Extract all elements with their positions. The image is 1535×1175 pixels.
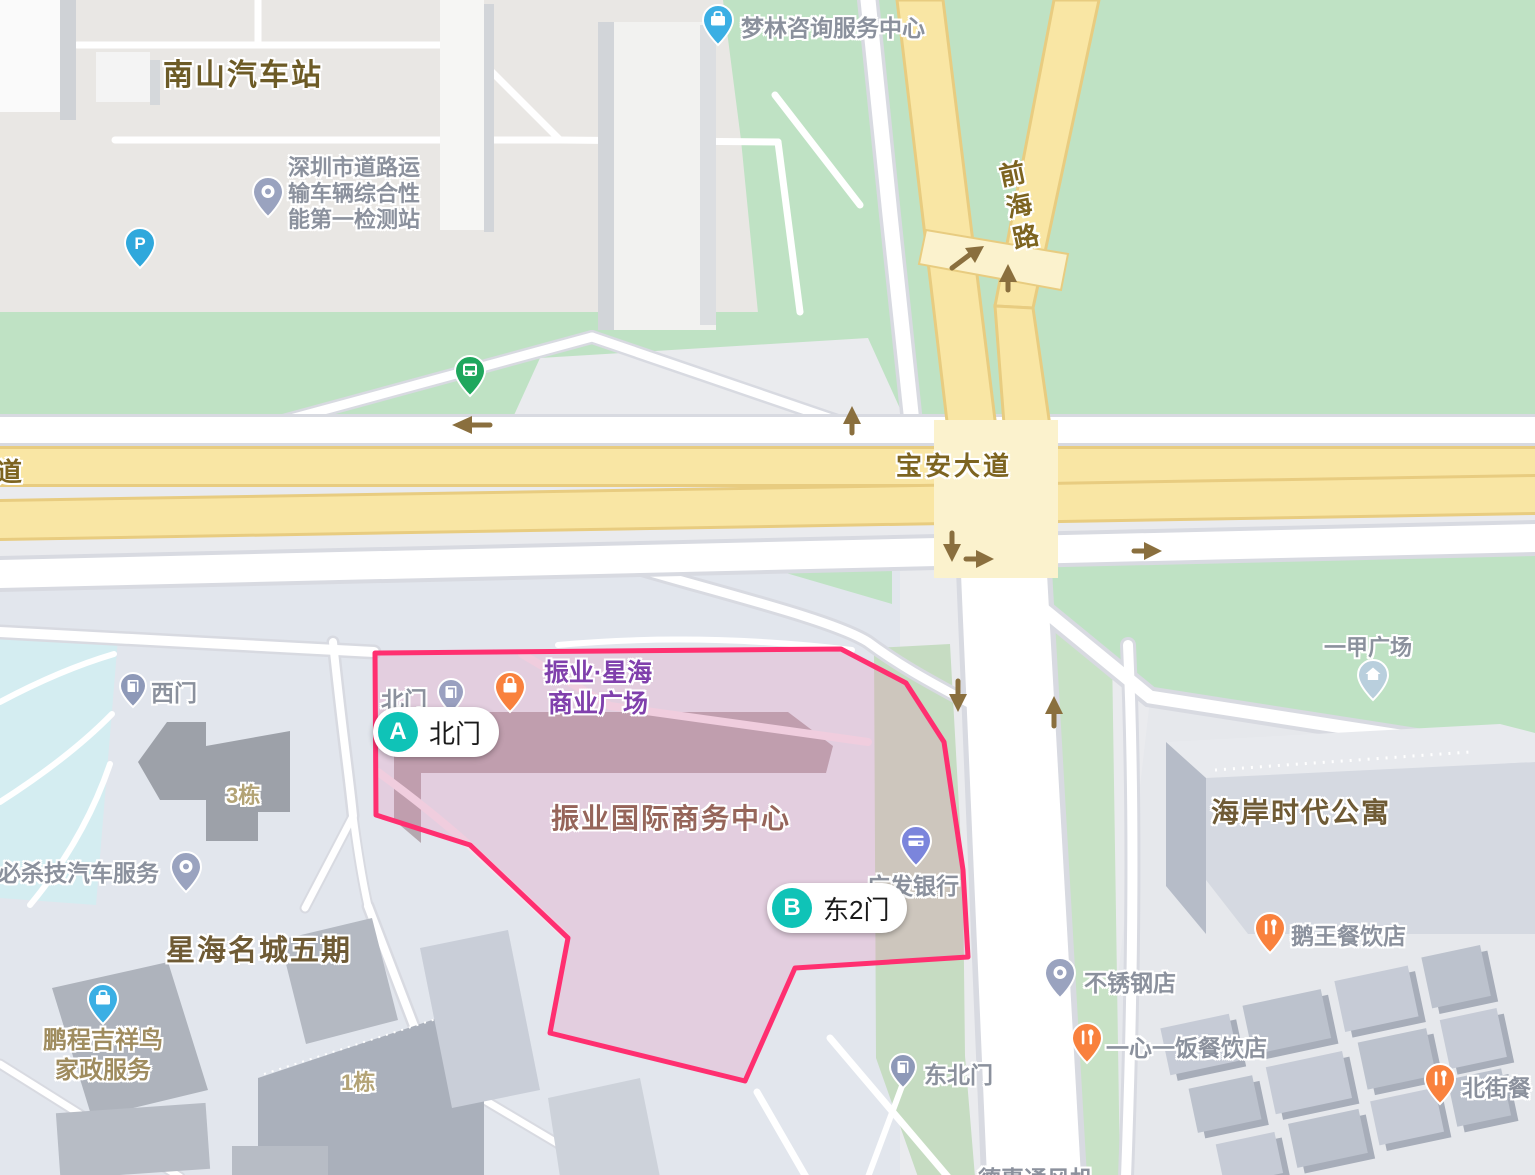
- door-pin-icon: [118, 671, 148, 709]
- gate-marker-a-label: 北门: [429, 714, 481, 751]
- dot-pin-icon: [251, 175, 285, 219]
- beijie-restaurant-pin[interactable]: [1423, 1062, 1457, 1111]
- district-label-haian: 海岸时代公寓: [1211, 791, 1391, 831]
- gate-marker-a-badge: A: [378, 712, 418, 752]
- zhenye-plaza-pin[interactable]: [493, 670, 527, 719]
- poi-label-west-gate: 西门: [151, 674, 197, 708]
- gate-marker-b-label: 东2门: [823, 890, 889, 927]
- yixin-restaurant-pin[interactable]: [1070, 1021, 1104, 1070]
- poi-label-zhenye-plaza: 振业·星海 商业广场: [517, 658, 679, 720]
- house-pin-icon: [1356, 658, 1390, 702]
- pengcheng-pin[interactable]: [86, 982, 120, 1031]
- map-canvas[interactable]: [0, 0, 1535, 1175]
- poi-label-dehui: 德惠通风机: [978, 1160, 1093, 1175]
- district-label-zhenye-center: 振业国际商务中心: [551, 797, 791, 837]
- bishaji-auto-pin[interactable]: [169, 850, 203, 899]
- dot-pin-icon: [1043, 956, 1077, 1000]
- briefcase-pin-icon: [701, 3, 735, 47]
- parking-icon: P: [123, 226, 157, 270]
- district-label-building1: 1栋: [341, 1065, 375, 1097]
- district-label-building3: 3栋: [226, 778, 260, 810]
- menglin-pin[interactable]: [701, 3, 735, 52]
- bank-card-pin-icon: [899, 824, 933, 868]
- restaurant-pin-icon: [1253, 911, 1287, 955]
- briefcase-pin-icon: [86, 982, 120, 1026]
- road-label-baoan: 宝安大道: [896, 446, 1012, 483]
- ewang-restaurant-pin[interactable]: [1253, 911, 1287, 960]
- shopping-bag-pin-icon: [493, 670, 527, 714]
- west-gate-pin[interactable]: [118, 671, 148, 714]
- poi-label-stainless: 不锈钢店: [1084, 964, 1176, 998]
- poi-label-inspection-station: 深圳市道路运 输车辆综合性 能第一检测站: [288, 155, 420, 233]
- guangfa-bank-pin[interactable]: [899, 824, 933, 873]
- poi-label-bishaji: 必杀技汽车服务: [0, 854, 159, 888]
- gate-marker-a[interactable]: A 北门: [373, 707, 499, 757]
- stainless-shop-pin[interactable]: [1043, 956, 1077, 1005]
- yijia-plaza-pin[interactable]: [1356, 658, 1390, 707]
- poi-label-beijie: 北街餐: [1462, 1069, 1531, 1103]
- bus-icon: [453, 354, 487, 398]
- poi-label-ewang: 鹅王餐饮店: [1291, 917, 1406, 951]
- northeast-gate-pin[interactable]: [888, 1052, 918, 1095]
- bus-stop-pin[interactable]: [453, 354, 487, 403]
- parking-pin[interactable]: P: [123, 226, 157, 275]
- dot-pin-icon: [169, 850, 203, 894]
- poi-label-pengcheng: 鹏程吉祥鸟 家政服务: [28, 1026, 178, 1086]
- map-stage[interactable]: 南山汽车站 深圳市道路运 输车辆综合性 能第一检测站 梦林咨询服务中心 前海路 …: [0, 0, 1535, 1175]
- poi-label-yixin: 一心一饭餐饮店: [1106, 1029, 1267, 1063]
- gate-marker-b[interactable]: B 东2门: [767, 883, 907, 933]
- poi-label-menglin: 梦林咨询服务中心: [741, 9, 925, 43]
- gate-marker-b-badge: B: [772, 888, 812, 928]
- poi-label-northeast-gate: 东北门: [924, 1056, 993, 1090]
- svg-text:P: P: [134, 234, 145, 253]
- district-label-nanshan-bus-station: 南山汽车站: [163, 50, 323, 94]
- road-label-partial: 道: [0, 452, 25, 489]
- district-label-xinghai: 星海名城五期: [166, 927, 352, 969]
- restaurant-pin-icon: [1070, 1021, 1104, 1065]
- door-pin-icon: [888, 1052, 918, 1090]
- inspection-station-pin[interactable]: [251, 175, 285, 224]
- restaurant-pin-icon: [1423, 1062, 1457, 1106]
